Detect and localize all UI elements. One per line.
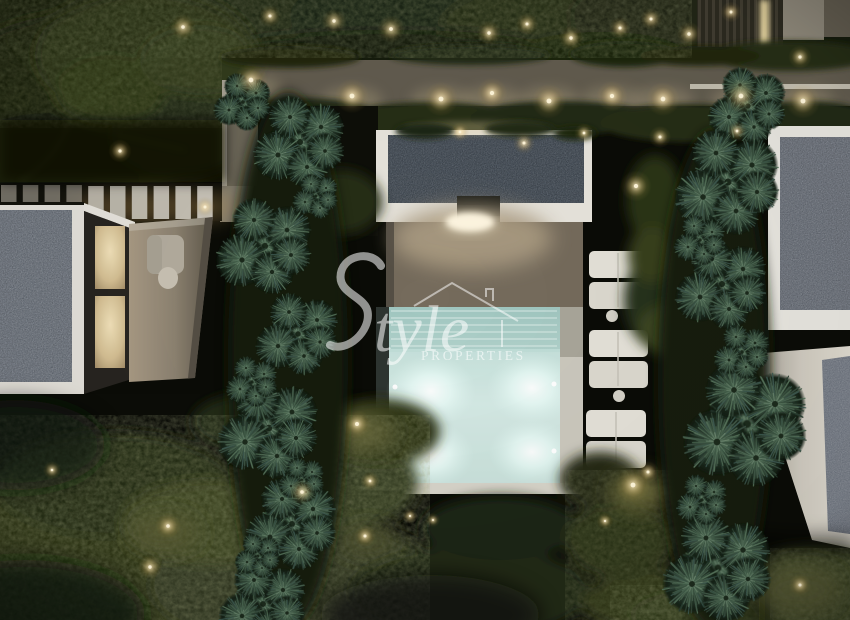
svg-text:PROPERTIES: PROPERTIES — [421, 348, 526, 363]
